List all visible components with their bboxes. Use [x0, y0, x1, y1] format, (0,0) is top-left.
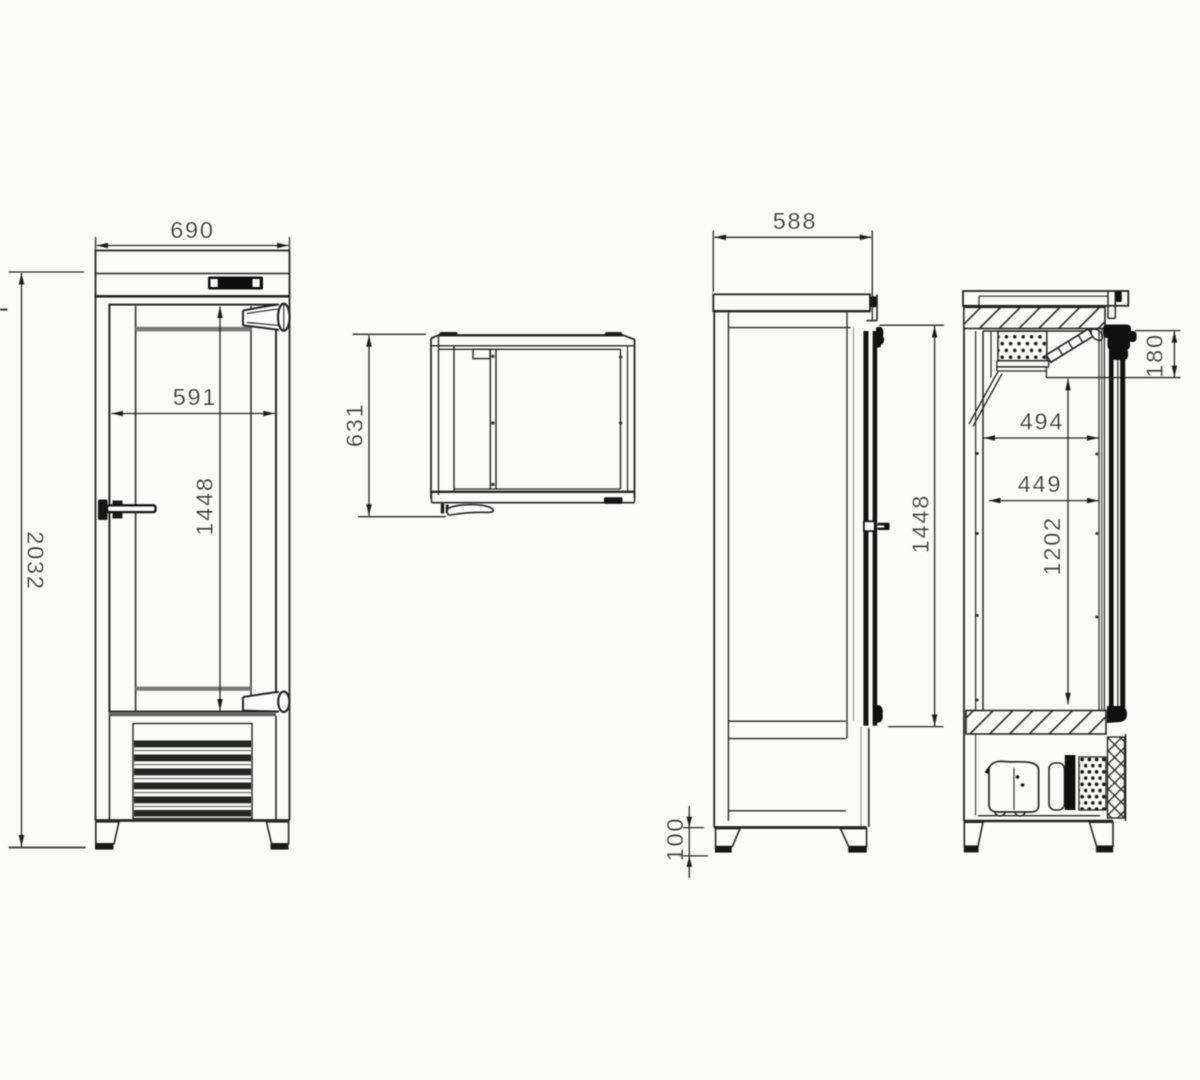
svg-text:591: 591 — [173, 384, 218, 410]
svg-text:690: 690 — [170, 217, 215, 243]
svg-text:1448: 1448 — [192, 476, 218, 535]
svg-text:180: 180 — [1141, 333, 1167, 378]
svg-text:449: 449 — [1018, 471, 1063, 497]
svg-text:2032: 2032 — [23, 531, 49, 590]
svg-text:100: 100 — [662, 817, 688, 862]
svg-text:588: 588 — [773, 208, 818, 234]
svg-text:631: 631 — [342, 402, 368, 447]
svg-text:494: 494 — [1020, 409, 1065, 435]
svg-text:1202: 1202 — [1039, 516, 1065, 575]
svg-text:1448: 1448 — [907, 494, 933, 553]
